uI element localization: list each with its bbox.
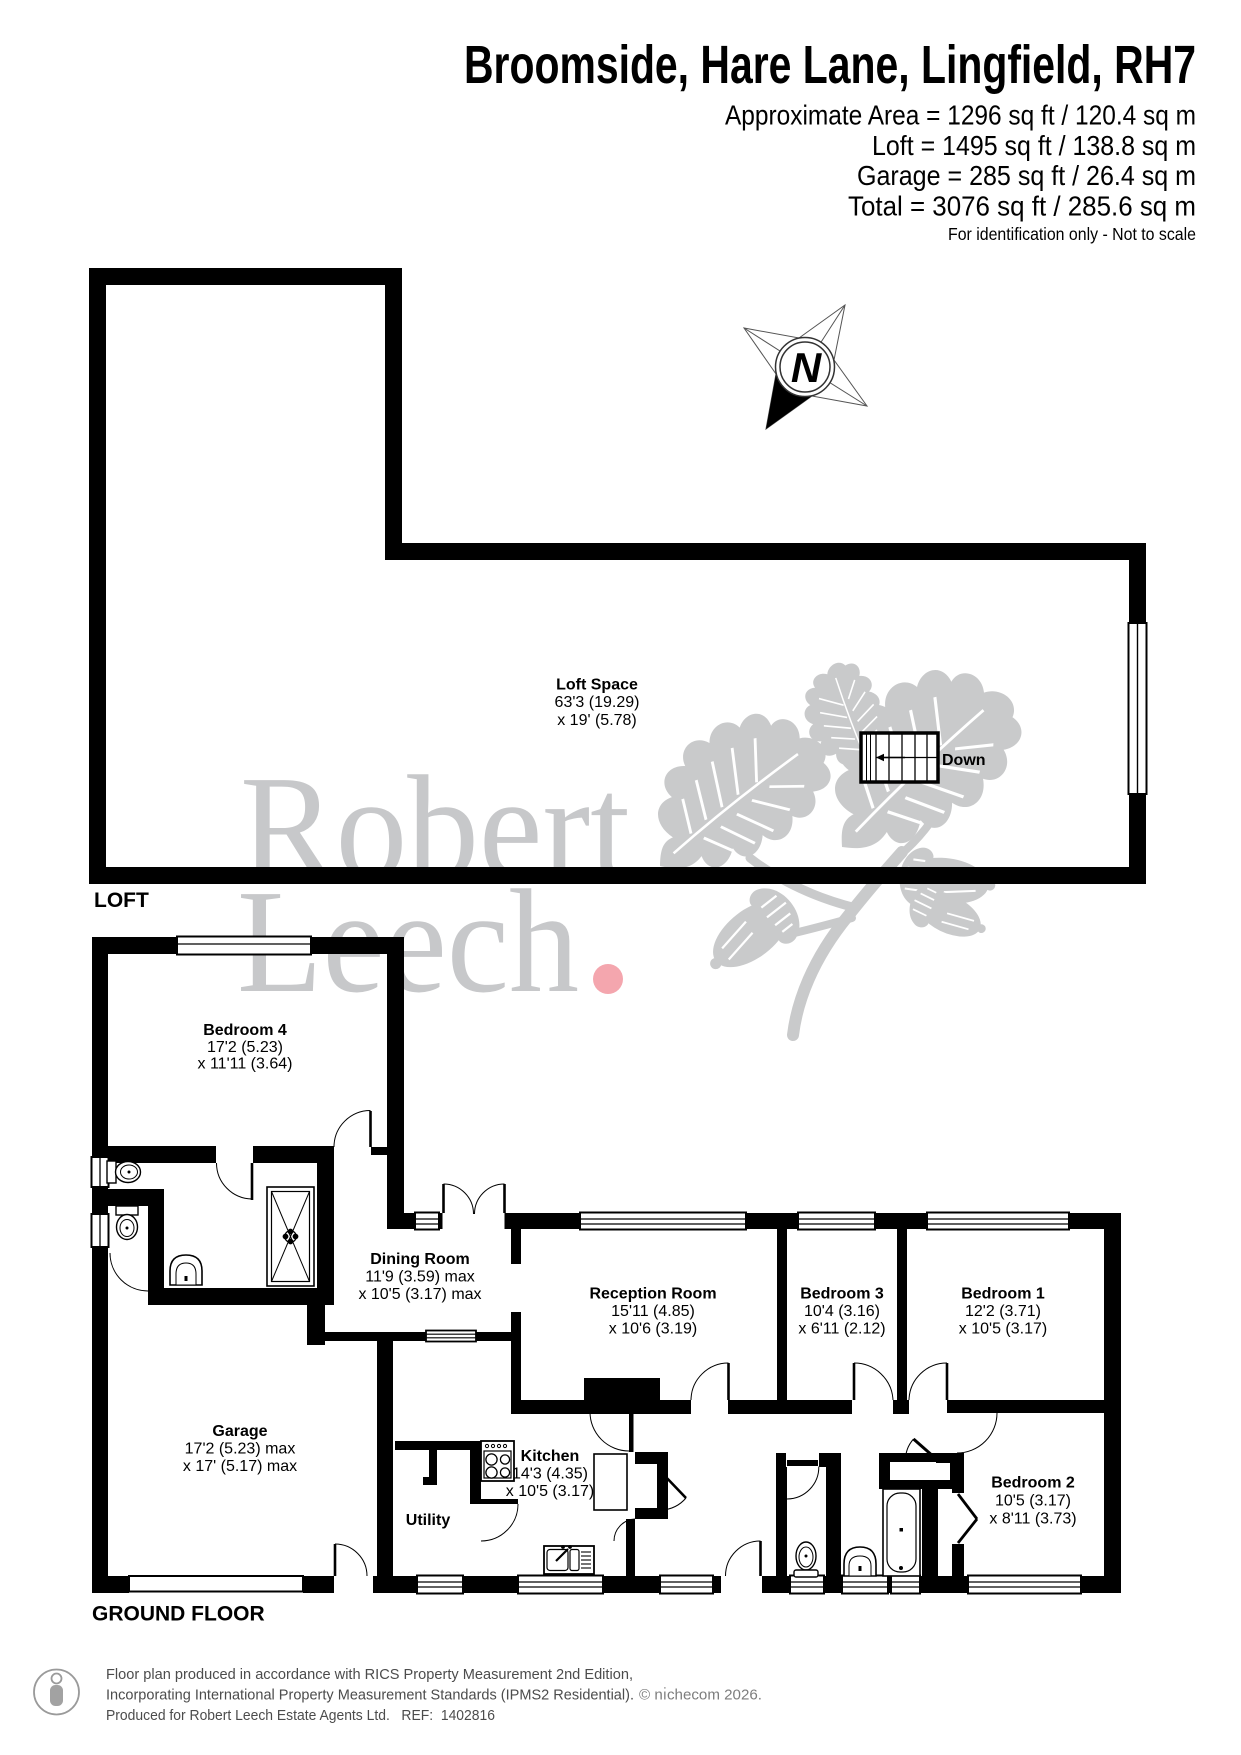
svg-text:Broomside, Hare Lane, Lingfiel: Broomside, Hare Lane, Lingfield, RH7 [464,35,1196,95]
svg-text:x 19' (5.78): x 19' (5.78) [557,712,637,729]
svg-text:Garage = 285 sq ft / 26.4 sq m: Garage = 285 sq ft / 26.4 sq m [857,160,1196,191]
svg-text:Kitchen: Kitchen [521,1448,580,1465]
svg-text:Loft Space: Loft Space [556,677,638,694]
svg-text:x 10'5 (3.17): x 10'5 (3.17) [959,1321,1047,1338]
svg-text:11'9 (3.59) max: 11'9 (3.59) max [365,1269,474,1286]
svg-text:Down: Down [942,752,986,769]
svg-text:x 11'11 (3.64): x 11'11 (3.64) [198,1056,293,1073]
svg-text:© nı̇checom 2026.: © nı̇checom 2026. [639,1686,762,1703]
svg-text:x 8'11 (3.73): x 8'11 (3.73) [989,1511,1076,1528]
svg-text:17'2 (5.23): 17'2 (5.23) [207,1039,283,1056]
svg-text:x 6'11 (2.12): x 6'11 (2.12) [798,1321,885,1338]
svg-text:Dining Room: Dining Room [370,1251,470,1268]
svg-text:N: N [791,344,823,391]
svg-text:17'2 (5.23) max: 17'2 (5.23) max [185,1441,296,1458]
svg-text:Produced for Robert Leech Esta: Produced for Robert Leech Estate Agents … [106,1708,495,1724]
svg-text:Utility: Utility [406,1512,451,1529]
svg-text:Bedroom 3: Bedroom 3 [800,1286,884,1303]
svg-text:Bedroom 4: Bedroom 4 [203,1022,287,1039]
svg-text:GROUND FLOOR: GROUND FLOOR [92,1603,265,1626]
svg-text:Garage: Garage [212,1423,267,1440]
svg-text:For identification only - Not: For identification only - Not to scale [948,224,1196,244]
svg-text:x 10'5 (3.17) max: x 10'5 (3.17) max [358,1286,481,1303]
svg-text:63'3 (19.29): 63'3 (19.29) [555,694,640,711]
svg-text:15'11 (4.85): 15'11 (4.85) [611,1303,695,1320]
svg-text:14'3 (4.35): 14'3 (4.35) [512,1466,588,1483]
svg-text:Floor plan produced in accorda: Floor plan produced in accordance with R… [106,1667,633,1683]
svg-text:Bedroom 2: Bedroom 2 [991,1475,1075,1492]
svg-text:10'5 (3.17): 10'5 (3.17) [995,1493,1071,1510]
svg-text:Approximate Area = 1296 sq ft: Approximate Area = 1296 sq ft / 120.4 sq… [725,100,1196,131]
svg-text:x 10'6 (3.19): x 10'6 (3.19) [609,1321,697,1338]
svg-text:x 10'5 (3.17): x 10'5 (3.17) [506,1483,594,1500]
svg-text:LOFT: LOFT [94,889,149,912]
svg-text:12'2 (3.71): 12'2 (3.71) [965,1303,1041,1320]
svg-text:Bedroom 1: Bedroom 1 [961,1286,1045,1303]
svg-text:x 17' (5.17) max: x 17' (5.17) max [183,1458,297,1475]
svg-text:Incorporating International Pr: Incorporating International Property Mea… [106,1688,634,1704]
svg-text:10'4 (3.16): 10'4 (3.16) [804,1303,880,1320]
svg-text:Reception Room: Reception Room [589,1286,716,1303]
svg-text:Loft = 1495 sq ft / 138.8 sq m: Loft = 1495 sq ft / 138.8 sq m [872,130,1196,161]
svg-text:Total = 3076 sq ft / 285.6 sq: Total = 3076 sq ft / 285.6 sq m [848,190,1196,221]
